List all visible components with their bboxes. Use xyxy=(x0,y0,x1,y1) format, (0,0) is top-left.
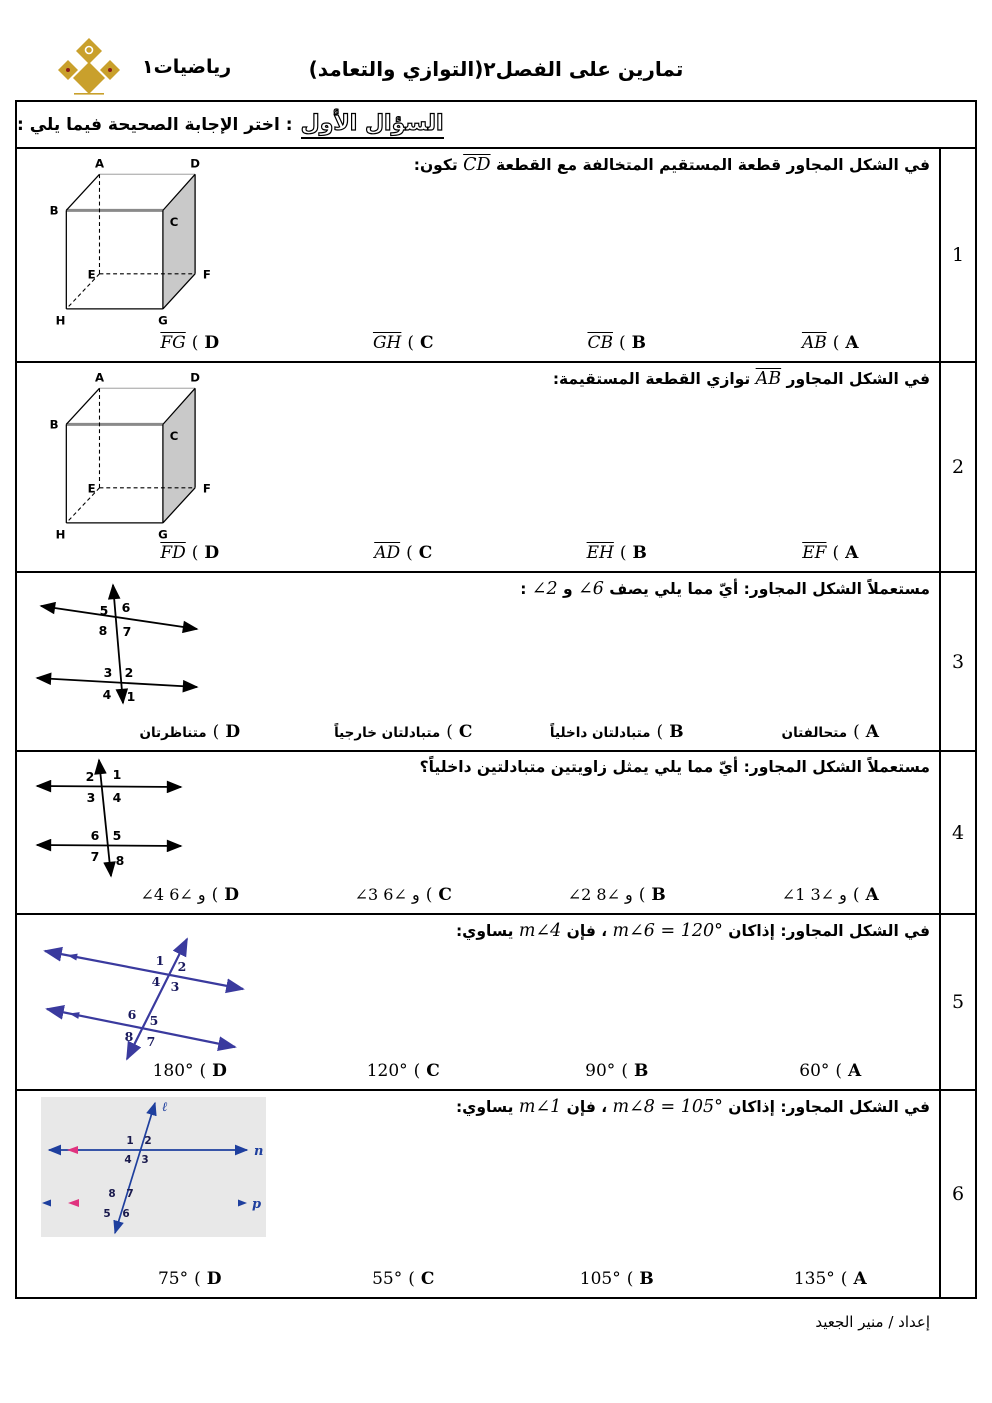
question-row-5: في الشكل المجاور: إذاكان m∠6 = 120° ، فإ… xyxy=(17,913,975,1089)
question-text-pre: مستعملاً الشكل المجاور: أيّ مما يلي يمثل… xyxy=(420,758,930,776)
angle-2: ∠2 xyxy=(532,579,558,599)
question-4-text: مستعملاً الشكل المجاور: أيّ مما يلي يمثل… xyxy=(420,758,930,776)
option-c: AD(C xyxy=(297,543,511,563)
question-row-1: في الشكل المجاور قطعة المستقيم المتخالفة… xyxy=(17,147,975,361)
option-value: EH xyxy=(587,543,614,563)
vertex-label: E xyxy=(88,482,96,496)
option-paren: ( xyxy=(426,885,433,905)
question-row-3: مستعملاً الشكل المجاور: أيّ مما يلي يصف … xyxy=(17,571,975,750)
angle-label: 2 xyxy=(125,665,134,680)
transversal-figure: 2 1 3 4 6 5 7 8 xyxy=(29,754,204,882)
question-row-4: مستعملاً الشكل المجاور: أيّ مما يلي يمثل… xyxy=(17,750,975,913)
option-a: EF(A xyxy=(724,543,938,563)
angle-6: ∠6 xyxy=(578,579,604,599)
section-instruction: : اختر الإجابة الصحيحة فيما يلي : xyxy=(17,115,293,135)
options-row: 180°(D 120°(C 90°(B 60°(A xyxy=(83,1061,937,1081)
question-text-mid: و xyxy=(563,580,573,598)
angle-label: 4 xyxy=(152,974,161,989)
question-text-pre: في الشكل المجاور قطعة المستقيم المتخالفة… xyxy=(496,156,930,174)
option-a: متحالفتان(A xyxy=(724,722,938,742)
question-text-post: توازي القطعة المستقيمة: xyxy=(553,370,750,388)
option-value: 135° xyxy=(794,1269,835,1289)
question-1-content: في الشكل المجاور قطعة المستقيم المتخالفة… xyxy=(17,149,939,361)
option-paren: ( xyxy=(192,333,199,353)
option-paren: ( xyxy=(192,543,199,563)
option-letter: B xyxy=(633,543,647,563)
angle-label: 6 xyxy=(91,828,100,843)
option-paren: ( xyxy=(406,543,413,563)
option-value: متبادلتان خارجياً xyxy=(334,725,440,741)
question-text-mid: ، فإن xyxy=(567,1098,607,1116)
angle-label: 7 xyxy=(147,1034,156,1049)
angle-label: 7 xyxy=(91,849,100,864)
question-text-post: : xyxy=(520,580,526,598)
option-paren: ( xyxy=(212,885,219,905)
option-b: متبادلتان داخلياً(B xyxy=(510,722,724,742)
option-value: 90° xyxy=(585,1061,615,1081)
lines-figure: ℓ n p 1 2 4 3 8 7 5 6 xyxy=(41,1097,266,1237)
option-paren: ( xyxy=(620,543,627,563)
line-l-label: ℓ xyxy=(162,1100,168,1115)
segment-cd: CD xyxy=(463,155,490,175)
cube-figure: A D B C E F H G xyxy=(39,367,239,551)
transversal-figure: 5 6 8 7 3 2 4 1 xyxy=(29,577,219,709)
question-number: 6 xyxy=(939,1091,975,1297)
question-1-text: في الشكل المجاور قطعة المستقيم المتخالفة… xyxy=(414,155,930,175)
exercise-sheet: السؤال الأول : اختر الإجابة الصحيحة فيما… xyxy=(15,100,977,1299)
question-number: 5 xyxy=(939,915,975,1089)
angle-label: 3 xyxy=(141,1154,148,1166)
question-3-content: مستعملاً الشكل المجاور: أيّ مما يلي يصف … xyxy=(17,573,939,750)
angle-label: 1 xyxy=(113,767,122,782)
option-value: متناظرتان xyxy=(139,725,206,741)
angle-label: 6 xyxy=(122,600,131,615)
option-value: ∠3 و ∠6 xyxy=(355,885,420,904)
angle-label: 1 xyxy=(127,689,136,704)
option-paren: ( xyxy=(414,1061,421,1081)
option-d: 75°(D xyxy=(83,1269,297,1289)
question-number: 2 xyxy=(939,363,975,571)
option-value: 120° xyxy=(367,1061,408,1081)
option-c: 55°(C xyxy=(297,1269,511,1289)
option-paren: ( xyxy=(408,1269,415,1289)
angle-label: 8 xyxy=(125,1029,134,1044)
option-letter: A xyxy=(845,333,858,353)
measure-equation: m∠8 = 105° xyxy=(613,1097,723,1117)
angle-label: 8 xyxy=(99,623,108,638)
option-paren: ( xyxy=(200,1061,207,1081)
angle-label: 1 xyxy=(156,953,165,968)
vertex-label: C xyxy=(170,429,179,443)
question-text-mid: ، فإن xyxy=(567,922,607,940)
option-paren: ( xyxy=(657,722,664,742)
option-letter: B xyxy=(632,333,646,353)
option-letter: C xyxy=(459,722,473,742)
angle-label: 8 xyxy=(116,853,125,868)
option-value: GH xyxy=(373,333,401,353)
option-paren: ( xyxy=(446,722,453,742)
angle-label: 4 xyxy=(103,687,112,702)
options-row: متناظرتان(D متبادلتان خارجياً(C متبادلتا… xyxy=(83,722,937,742)
angle-label: 1 xyxy=(126,1135,133,1147)
options-row: ∠4 و ∠6(D ∠3 و ∠6(C ∠2 و ∠8(B ∠1 و ∠3(A xyxy=(83,885,937,905)
vertex-label: H xyxy=(56,314,66,328)
option-letter: B xyxy=(669,722,683,742)
worksheet-page: { "ui": { "open_paren": "(" }, "header":… xyxy=(0,0,992,1403)
option-c: متبادلتان خارجياً(C xyxy=(297,722,511,742)
option-letter: D xyxy=(204,333,219,353)
option-letter: B xyxy=(651,885,665,905)
option-letter: A xyxy=(866,722,879,742)
option-paren: ( xyxy=(832,543,839,563)
option-paren: ( xyxy=(639,885,646,905)
option-letter: B xyxy=(639,1269,653,1289)
vertex-label: B xyxy=(50,203,59,217)
option-letter: D xyxy=(204,543,219,563)
vertex-label: D xyxy=(190,370,200,384)
option-a: 135°(A xyxy=(724,1269,938,1289)
line-n-label: n xyxy=(254,1144,263,1159)
question-6-content: في الشكل المجاور: إذاكان m∠8 = 105° ، فإ… xyxy=(17,1091,939,1297)
angle-label: 3 xyxy=(87,790,96,805)
option-c: 120°(C xyxy=(297,1061,511,1081)
option-value: متبادلتان داخلياً xyxy=(550,725,651,741)
vertex-label: F xyxy=(203,482,211,496)
question-5-content: في الشكل المجاور: إذاكان m∠6 = 120° ، فإ… xyxy=(17,915,939,1089)
angle-label: 5 xyxy=(150,1013,159,1028)
angle-label: 8 xyxy=(108,1188,115,1200)
option-value: 55° xyxy=(372,1269,402,1289)
option-letter: C xyxy=(421,1269,435,1289)
question-number: 4 xyxy=(939,752,975,913)
option-value: ∠4 و ∠6 xyxy=(141,885,206,904)
option-c: GH(C xyxy=(297,333,511,353)
option-value: ∠1 و ∠3 xyxy=(782,885,847,904)
option-d: FG(D xyxy=(83,333,297,353)
vertex-label: C xyxy=(170,215,179,229)
option-value: متحالفتان xyxy=(782,725,848,741)
figure-background xyxy=(41,1097,266,1237)
option-value: AB xyxy=(802,333,827,353)
angle-label: 3 xyxy=(171,979,180,994)
option-letter: C xyxy=(419,543,433,563)
option-paren: ( xyxy=(627,1269,634,1289)
segment-ab: AB xyxy=(756,369,782,389)
angle-label: 4 xyxy=(113,790,122,805)
angle-label: 7 xyxy=(126,1188,133,1200)
vertex-label: B xyxy=(50,417,59,431)
cube-figure: A D B C E F H G xyxy=(39,153,239,337)
option-b: EH(B xyxy=(510,543,724,563)
question-row-2: في الشكل المجاور AB توازي القطعة المستقي… xyxy=(17,361,975,571)
option-b: ∠2 و ∠8(B xyxy=(510,885,724,905)
vertex-label: H xyxy=(56,528,66,542)
options-row: FD(D AD(C EH(B EF(A xyxy=(83,543,937,563)
option-a: ∠1 و ∠3(A xyxy=(724,885,938,905)
section-title: السؤال الأول xyxy=(301,111,444,139)
option-d: FD(D xyxy=(83,543,297,563)
vertex-label: A xyxy=(95,370,104,384)
angle-label: 2 xyxy=(178,959,187,974)
option-a: 60°(A xyxy=(724,1061,938,1081)
option-value: EF xyxy=(802,543,826,563)
option-letter: D xyxy=(224,885,239,905)
option-value: 75° xyxy=(158,1269,188,1289)
option-letter: A xyxy=(853,1269,866,1289)
question-number: 3 xyxy=(939,573,975,750)
option-value: FD xyxy=(160,543,185,563)
measure-target: m∠1 xyxy=(519,1097,561,1117)
vertex-label: G xyxy=(158,528,168,542)
option-value: ∠2 و ∠8 xyxy=(568,885,633,904)
measure-equation: m∠6 = 120° xyxy=(613,921,723,941)
page-title: تمارين على الفصل٢(التوازي والتعامد) xyxy=(0,57,992,81)
option-paren: ( xyxy=(194,1269,201,1289)
option-paren: ( xyxy=(853,885,860,905)
option-paren: ( xyxy=(407,333,414,353)
question-text-post: يساوي: xyxy=(456,1098,513,1116)
option-paren: ( xyxy=(619,333,626,353)
angle-label: 7 xyxy=(123,624,132,639)
angle-label: 2 xyxy=(144,1135,151,1147)
option-value: AD xyxy=(374,543,400,563)
options-row: FG(D GH(C CB(B AB(A xyxy=(83,333,937,353)
vertex-label: D xyxy=(190,156,200,170)
option-c: ∠3 و ∠6(C xyxy=(297,885,511,905)
vertex-label: F xyxy=(203,268,211,282)
option-paren: ( xyxy=(833,333,840,353)
option-letter: D xyxy=(225,722,240,742)
parallel-lines-figure: 1 2 4 3 6 5 8 7 xyxy=(35,927,255,1069)
option-d: ∠4 و ∠6(D xyxy=(83,885,297,905)
option-value: 180° xyxy=(153,1061,194,1081)
option-letter: A xyxy=(866,885,879,905)
vertex-label: E xyxy=(88,268,96,282)
question-text-pre: في الشكل المجاور: إذاكان xyxy=(728,1098,930,1116)
line-p-label: p xyxy=(252,1197,261,1212)
question-6-text: في الشكل المجاور: إذاكان m∠8 = 105° ، فإ… xyxy=(456,1097,930,1117)
question-2-content: في الشكل المجاور AB توازي القطعة المستقي… xyxy=(17,363,939,571)
measure-target: m∠4 xyxy=(519,921,561,941)
option-value: FG xyxy=(160,333,185,353)
option-value: 60° xyxy=(799,1061,829,1081)
option-letter: C xyxy=(420,333,434,353)
question-3-text: مستعملاً الشكل المجاور: أيّ مما يلي يصف … xyxy=(520,579,930,599)
question-5-text: في الشكل المجاور: إذاكان m∠6 = 120° ، فإ… xyxy=(456,921,930,941)
option-letter: B xyxy=(634,1061,648,1081)
option-letter: D xyxy=(212,1061,227,1081)
question-text-pre: مستعملاً الشكل المجاور: أيّ مما يلي يصف xyxy=(609,580,930,598)
cube-shaded-face xyxy=(163,388,195,523)
option-value: CB xyxy=(587,333,613,353)
question-number: 1 xyxy=(939,149,975,361)
option-letter: C xyxy=(438,885,452,905)
option-paren: ( xyxy=(853,722,860,742)
angle-label: 2 xyxy=(86,769,95,784)
option-value: 105° xyxy=(580,1269,621,1289)
angle-label: 6 xyxy=(122,1208,129,1220)
question-text-pre: في الشكل المجاور: إذاكان xyxy=(728,922,930,940)
angle-label: 5 xyxy=(100,603,109,618)
option-b: 90°(B xyxy=(510,1061,724,1081)
question-row-6: في الشكل المجاور: إذاكان m∠8 = 105° ، فإ… xyxy=(17,1089,975,1297)
angle-label: 3 xyxy=(104,665,113,680)
option-d: متناظرتان(D xyxy=(83,722,297,742)
option-paren: ( xyxy=(835,1061,842,1081)
question-2-text: في الشكل المجاور AB توازي القطعة المستقي… xyxy=(553,369,930,389)
question-text-pre: في الشكل المجاور xyxy=(787,370,930,388)
angle-label: 4 xyxy=(124,1154,131,1166)
option-letter: A xyxy=(848,1061,861,1081)
vertex-label: A xyxy=(95,156,104,170)
vertex-label: G xyxy=(158,314,168,328)
angle-label: 5 xyxy=(113,828,122,843)
option-paren: ( xyxy=(841,1269,848,1289)
option-b: CB(B xyxy=(510,333,724,353)
option-a: AB(A xyxy=(724,333,938,353)
option-paren: ( xyxy=(213,722,220,742)
cube-shaded-face xyxy=(163,174,195,309)
angle-label: 5 xyxy=(103,1208,110,1220)
option-letter: A xyxy=(845,543,858,563)
prepared-by: إعداد / منير الجعيد xyxy=(815,1313,930,1331)
option-d: 180°(D xyxy=(83,1061,297,1081)
angle-label: 6 xyxy=(128,1007,137,1022)
section-header: السؤال الأول : اختر الإجابة الصحيحة فيما… xyxy=(17,102,975,147)
question-4-content: مستعملاً الشكل المجاور: أيّ مما يلي يمثل… xyxy=(17,752,939,913)
question-text-post: يساوي: xyxy=(456,922,513,940)
option-letter: C xyxy=(426,1061,440,1081)
options-row: 75°(D 55°(C 105°(B 135°(A xyxy=(83,1269,937,1289)
question-text-post: تكون: xyxy=(414,156,458,174)
option-b: 105°(B xyxy=(510,1269,724,1289)
option-letter: D xyxy=(207,1269,222,1289)
option-paren: ( xyxy=(621,1061,628,1081)
